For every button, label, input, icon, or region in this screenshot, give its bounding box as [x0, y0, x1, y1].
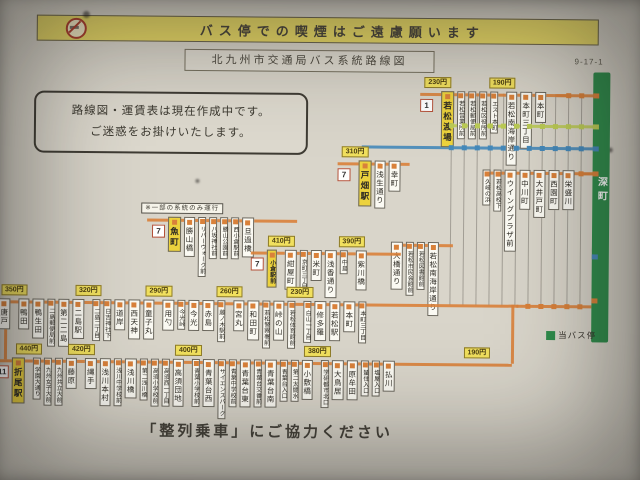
station-name: 中島	[340, 259, 346, 271]
station-name: 九州女子大前	[44, 367, 50, 403]
fare-marker: 290円	[157, 300, 159, 308]
route-node	[577, 304, 582, 309]
station-name: 浅香通り	[326, 260, 334, 294]
route-node	[553, 124, 558, 129]
fare-marker: 190円	[475, 361, 477, 369]
fare-marker: 320円	[87, 299, 89, 307]
station-box: 栄盛川	[562, 170, 574, 210]
station-box: 青葉中学校前	[228, 359, 236, 407]
station-box: 用勺	[162, 300, 174, 331]
notice-line-1: 路線図・運賃表は現在作成中です。	[36, 101, 306, 124]
station-name: 学研都市北口	[322, 369, 328, 405]
legend-swatch	[546, 331, 555, 340]
station-name: 勝山橋	[185, 227, 193, 253]
current-stop-node	[593, 124, 599, 129]
station-box: 峠の山	[273, 301, 285, 341]
route-node	[540, 124, 545, 129]
fare-badge: 230円	[286, 287, 313, 298]
photo-frame: バス停での喫煙はご遠慮願います 北九州市交通局バス系統路線図 9-17-1 路線…	[0, 0, 640, 480]
station-box: 京町三丁目	[299, 250, 307, 292]
station-box: 西園町	[548, 170, 560, 210]
station-box: 修多羅	[314, 301, 326, 341]
route-number-badge: 7	[337, 168, 350, 181]
fare-marker: 440円	[27, 357, 29, 365]
station-box: 赤島	[202, 300, 214, 331]
station-name: 藤原	[67, 368, 75, 385]
station-box: 大井戸町	[533, 170, 545, 218]
station-name: 高須団地	[174, 369, 182, 403]
station-box: 日吉神社下	[103, 299, 111, 341]
station-box: 若松営業所前	[456, 91, 464, 139]
station-name: 若松郵便局前	[468, 100, 474, 136]
station-box: 青葉台入口	[279, 360, 287, 402]
fare-marker: 380円	[316, 360, 318, 368]
station-box: 蜑住入口	[361, 360, 369, 396]
fare-badge: 310円	[342, 146, 369, 157]
station-name: 日吉神社下	[104, 308, 110, 338]
fare-badge: 290円	[145, 286, 172, 297]
station-box: 原牟田	[346, 360, 358, 400]
route-node	[564, 304, 569, 309]
route-node	[566, 146, 571, 151]
fare-badge: 380円	[304, 346, 331, 357]
route-node	[514, 146, 519, 151]
station-box: 宮丸	[233, 300, 245, 331]
station-name: 米町	[312, 260, 320, 277]
no-smoking-icon	[66, 17, 87, 38]
station-box: 第二太閤水	[290, 360, 298, 402]
station-name: 若松営業所前	[457, 100, 463, 136]
route-map-poster: バス停での喫煙はご遠慮願います 北九州市交通局バス系統路線図 9-17-1 路線…	[0, 0, 640, 480]
station-name: 小敷橋	[303, 370, 311, 396]
terminal-station-box: 若松渡場	[441, 91, 454, 147]
station-name: 青葉台西	[205, 369, 213, 403]
station-box: 九州女子大前	[43, 358, 51, 406]
station-box: 縄手	[85, 358, 97, 389]
station-name: 原牟田	[348, 370, 356, 396]
station-box: 払川	[383, 361, 395, 392]
station-name: 藤ノ木駅前	[218, 309, 224, 339]
station-name: 紺屋町	[287, 260, 295, 286]
station-name: 高須西一丁目	[162, 368, 168, 404]
route-row-wakato: 1230円若松渡場若松営業所前若松郵便局前若松区役所前エスト本町190円若松南海…	[420, 81, 571, 166]
route-node	[527, 146, 532, 151]
station-name: 小倉駅前	[269, 260, 275, 284]
station-box: 浅川本村	[99, 358, 111, 406]
legend: 当バス停	[546, 329, 596, 341]
station-box: 本町三丁目	[358, 301, 366, 343]
station-box: 道岸	[114, 299, 126, 330]
station-name: 京町三丁目	[300, 259, 306, 289]
route-node	[579, 171, 584, 176]
station-box: 八坂神社前	[209, 217, 217, 259]
route-node	[475, 123, 480, 128]
station-box: 若松駅	[329, 301, 341, 341]
station-box: 白山一丁目	[303, 301, 311, 343]
route-row-orio: 11折尾駅440円学園大通り九州女子大前九州共立大前藤原420円縄手浅川本村浅川…	[0, 347, 512, 422]
station-name: 青葉中学校前	[229, 368, 235, 404]
station-name: 青葉台東	[241, 369, 249, 403]
station-name: 青葉小学校前	[193, 368, 199, 404]
station-name: 若松南海岸通り	[507, 102, 515, 162]
fare-marker: 350円	[13, 298, 15, 306]
smoking-banner: バス停での喫煙はご遠慮願います	[37, 15, 599, 46]
station-name: 二島二丁目	[93, 308, 99, 338]
fare-marker: 410円	[280, 250, 282, 258]
station-box: 西小倉駅前	[231, 217, 239, 259]
station-name: 若松駅	[331, 311, 339, 337]
station-box: 勝山公園前	[220, 217, 228, 259]
terminal-station-box: 小倉駅前	[267, 250, 277, 288]
route-number-badge: 7	[251, 257, 264, 270]
station-name: 若松警察署前	[263, 310, 269, 346]
station-name: 道岸	[116, 309, 124, 326]
station-name: 若松体育館前	[288, 310, 294, 346]
station-box: 若松区役所前	[478, 91, 486, 139]
station-box: 若松体育館前	[287, 301, 295, 349]
station-name: 峠の山	[275, 311, 283, 337]
station-name: 折尾駅	[14, 367, 23, 399]
station-name: 第二太閤水	[291, 369, 297, 399]
station-box: 勝山橋	[183, 217, 195, 257]
station-box: 久岐の浜	[482, 169, 490, 205]
station-name: 中川町	[521, 180, 529, 206]
station-box: 大鳥居	[332, 360, 344, 400]
terminal-station-box: 戸畑駅	[358, 160, 371, 206]
station-name: 大井戸町	[535, 180, 543, 214]
station-name: サイエンスパーク	[218, 368, 224, 416]
station-box: 若松郵便局前	[467, 91, 475, 139]
station-box: 浅川橋	[125, 358, 137, 398]
station-box: 高須団地	[172, 359, 184, 407]
fare-badge: 230円	[424, 77, 451, 88]
station-box: 青葉台交番前	[253, 359, 261, 407]
fare-marker: 230円	[436, 91, 438, 99]
photo-speck	[195, 179, 199, 183]
fare-badge: 260円	[216, 286, 243, 297]
fare-marker: 310円	[354, 160, 356, 168]
current-stop-node	[593, 171, 599, 176]
banner-text: バス停での喫煙はご遠慮願います	[87, 19, 598, 42]
station-name: 西園町	[550, 180, 558, 206]
station-name: 学園大通り	[33, 367, 39, 397]
route-number-badge: 7	[152, 225, 165, 238]
station-box: 若松高校下	[493, 170, 501, 212]
route-node	[579, 93, 584, 98]
station-name: 八坂神社前	[210, 226, 216, 256]
route-node	[527, 124, 532, 129]
station-box: 本町	[534, 92, 546, 123]
station-name: 和田町	[249, 310, 257, 336]
station-box: 二島郵便局前	[47, 299, 55, 347]
station-box: 青葉台西	[202, 359, 214, 407]
station-name: 童子丸	[145, 310, 153, 336]
station-name: 宮丸	[235, 310, 243, 327]
route-row-main: 唐戸350円鴨田鴨生田二島郵便局前第二二島二島駅320円二島二丁目日吉神社下道岸…	[0, 288, 519, 351]
notice-box: 路線図・運賃表は現在作成中です。 ご迷惑をお掛けいたします。	[34, 91, 309, 155]
station-name: 鴨田	[20, 308, 28, 325]
station-name: 白山一丁目	[304, 310, 310, 340]
station-box: 中川町	[519, 170, 531, 210]
fare-badge: 190円	[489, 78, 516, 89]
sheet-code: 9-17-1	[574, 57, 603, 66]
station-name: 蜑住入口	[362, 369, 368, 393]
station-name: 若松市民会館前	[406, 251, 412, 293]
station-name: 青葉台南	[267, 370, 275, 404]
route-node	[475, 145, 480, 150]
station-box: 若松図書館前	[416, 242, 424, 290]
current-stop-node	[593, 93, 599, 98]
route-node	[579, 146, 584, 151]
station-box: 幸町	[388, 161, 400, 192]
station-box: 青葉台南	[264, 360, 276, 408]
station-name: 浅川本村	[101, 368, 109, 402]
fare-badge: 400円	[175, 345, 202, 356]
station-box: 今光峠	[177, 300, 185, 330]
station-box: 浅川中学校前	[113, 358, 121, 406]
route-node	[525, 304, 530, 309]
station-box: 本町三丁目	[520, 92, 532, 149]
station-box: 今光	[188, 300, 200, 331]
footer-text: 「整列乗車」にご協力ください	[141, 419, 393, 442]
station-box: 藤ノ木駅前	[217, 300, 225, 342]
station-name: 戸畑駅	[360, 170, 369, 202]
fare-badge: 350円	[1, 284, 28, 295]
station-box: 小敷橋	[301, 360, 313, 400]
station-box: 若松警察署前	[262, 301, 270, 349]
station-name: 二島駅	[74, 309, 82, 335]
station-name: 二島郵便局前	[48, 308, 54, 344]
station-box: 本町	[343, 301, 355, 332]
station-box: 二島駅	[72, 299, 84, 339]
route-node	[540, 146, 545, 151]
station-box: 学研都市北口	[320, 360, 328, 408]
route-node	[449, 145, 454, 150]
route-map-title: 北九州市交通局バス系統路線図	[184, 49, 434, 73]
station-name: 幸町	[390, 171, 398, 188]
route-node	[551, 304, 556, 309]
station-name: 若松図書館前	[417, 251, 423, 287]
route-number-badge: 11	[0, 365, 9, 378]
station-name: 唐戸	[0, 308, 8, 325]
route-node	[514, 124, 519, 129]
station-name: 若松渡場	[443, 101, 452, 143]
station-name: 浅川中学校前	[115, 367, 121, 403]
station-box: 第二浅川橋	[139, 358, 147, 400]
station-box: 米町	[310, 250, 322, 281]
station-box: 高須西一丁目	[161, 359, 169, 407]
station-name: 久岐の浜	[483, 178, 489, 202]
station-name: ウイングプラザ前	[506, 180, 514, 248]
station-name: 九州共立大前	[55, 367, 61, 403]
station-name: 今光	[190, 310, 198, 327]
route-node	[566, 124, 571, 129]
route-node	[579, 124, 584, 129]
fare-badge: 320円	[75, 285, 102, 296]
fare-marker: 230円	[298, 301, 300, 309]
route-node	[501, 146, 506, 151]
station-name: 用勺	[164, 310, 172, 327]
service-note: ※一部の系統のみ運行	[141, 202, 223, 214]
station-name: 西天神	[130, 309, 138, 335]
notice-line-2: ご迷惑をお掛けいたします。	[36, 122, 306, 145]
fare-marker: 420円	[80, 358, 82, 366]
station-box: 紺屋町	[285, 250, 297, 290]
legend-label: 当バス停	[558, 329, 596, 341]
station-name: 若松高校下	[494, 179, 500, 209]
route-node	[501, 124, 506, 129]
fare-marker: 190円	[501, 92, 503, 100]
route-node	[538, 304, 543, 309]
fare-badge: 390円	[338, 236, 365, 247]
station-name: 青葉台入口	[280, 369, 286, 399]
station-name: 栄盛川	[564, 180, 572, 206]
station-box: サイエンスパーク	[217, 359, 226, 419]
station-box: 和田町	[247, 300, 259, 340]
station-box: 西天神	[128, 299, 140, 339]
note-marker: ※一部の系統のみ運行	[147, 217, 149, 225]
station-box: 塩屋入口	[372, 361, 380, 397]
current-stop-label: 深町	[595, 176, 605, 204]
station-name: 塩屋入口	[373, 370, 379, 394]
route-node	[553, 146, 558, 151]
terminal-station-box: 折尾駅	[12, 357, 25, 403]
station-name: 西小倉駅前	[232, 226, 238, 256]
station-box: 青葉小学校前	[191, 359, 199, 407]
current-stop-node	[593, 146, 599, 151]
route-number-badge: 1	[420, 99, 433, 112]
station-name: 大鳥居	[334, 370, 342, 396]
route-node	[488, 146, 493, 151]
station-name: 払川	[385, 371, 393, 388]
station-box: 高須小学校前	[150, 359, 158, 407]
station-box: リバーウォーク前	[198, 217, 207, 277]
fare-marker: 400円	[187, 359, 189, 367]
fare-badge: 420円	[68, 344, 95, 355]
station-name: 第二二島	[60, 309, 68, 343]
route-node	[462, 123, 467, 128]
station-box: 九州共立大前	[54, 358, 62, 406]
station-name: 修多羅	[316, 311, 324, 337]
station-box: 青葉台東	[239, 359, 251, 407]
station-box: 学園大通り	[32, 358, 40, 400]
station-name: 鴨生田	[34, 309, 42, 335]
station-box: 第二二島	[58, 299, 70, 347]
station-box: 唐戸	[0, 298, 10, 329]
station-box: 中島	[339, 250, 347, 274]
station-name: 青葉台交番前	[255, 368, 261, 404]
station-name: リバーウォーク前	[199, 226, 205, 274]
current-stop-node	[591, 298, 597, 303]
route-node	[566, 93, 571, 98]
fare-marker: 260円	[228, 300, 230, 308]
route-node	[462, 145, 467, 150]
station-box: 藤原	[65, 358, 77, 389]
station-box: 童子丸	[143, 300, 155, 340]
route-node	[449, 123, 454, 128]
station-name: 浅川橋	[127, 368, 135, 394]
station-name: 縄手	[87, 368, 95, 385]
station-name: 今光峠	[178, 309, 184, 327]
station-box: 浅生通り	[374, 161, 386, 209]
station-box: 鴨生田	[32, 299, 44, 339]
fare-badge: 440円	[15, 343, 42, 354]
station-name: 本町	[537, 102, 545, 119]
station-box: ウイングプラザ前	[504, 170, 516, 252]
station-name: 高須小学校前	[151, 368, 157, 404]
photo-speck	[83, 11, 90, 18]
station-box: 二島二丁目	[92, 299, 100, 341]
station-name: 魚町	[170, 227, 179, 248]
station-name: 勝山公園前	[221, 226, 227, 256]
station-name: 本町	[345, 311, 353, 328]
route-row-tobata: 7310円戸畑駅浅生通り幸町	[337, 150, 410, 209]
fare-badge: 190円	[463, 347, 490, 358]
station-name: 紫川橋	[357, 260, 365, 286]
station-name: 第二浅川橋	[140, 367, 146, 397]
route-node	[488, 124, 493, 129]
station-box: 鴨田	[18, 298, 30, 329]
fare-badge: 410円	[268, 236, 295, 247]
fare-marker: 390円	[350, 250, 352, 258]
terminal-station-box: 魚町	[168, 217, 181, 252]
station-box: 若松市民会館前	[405, 242, 413, 296]
station-box: 紫川橋	[355, 250, 367, 290]
station-name: 本町三丁目	[359, 310, 365, 340]
station-name: 若松区役所前	[479, 100, 485, 136]
station-name: 赤島	[204, 310, 212, 327]
station-name: 浅生通り	[376, 171, 384, 205]
current-stop-node	[592, 254, 598, 259]
